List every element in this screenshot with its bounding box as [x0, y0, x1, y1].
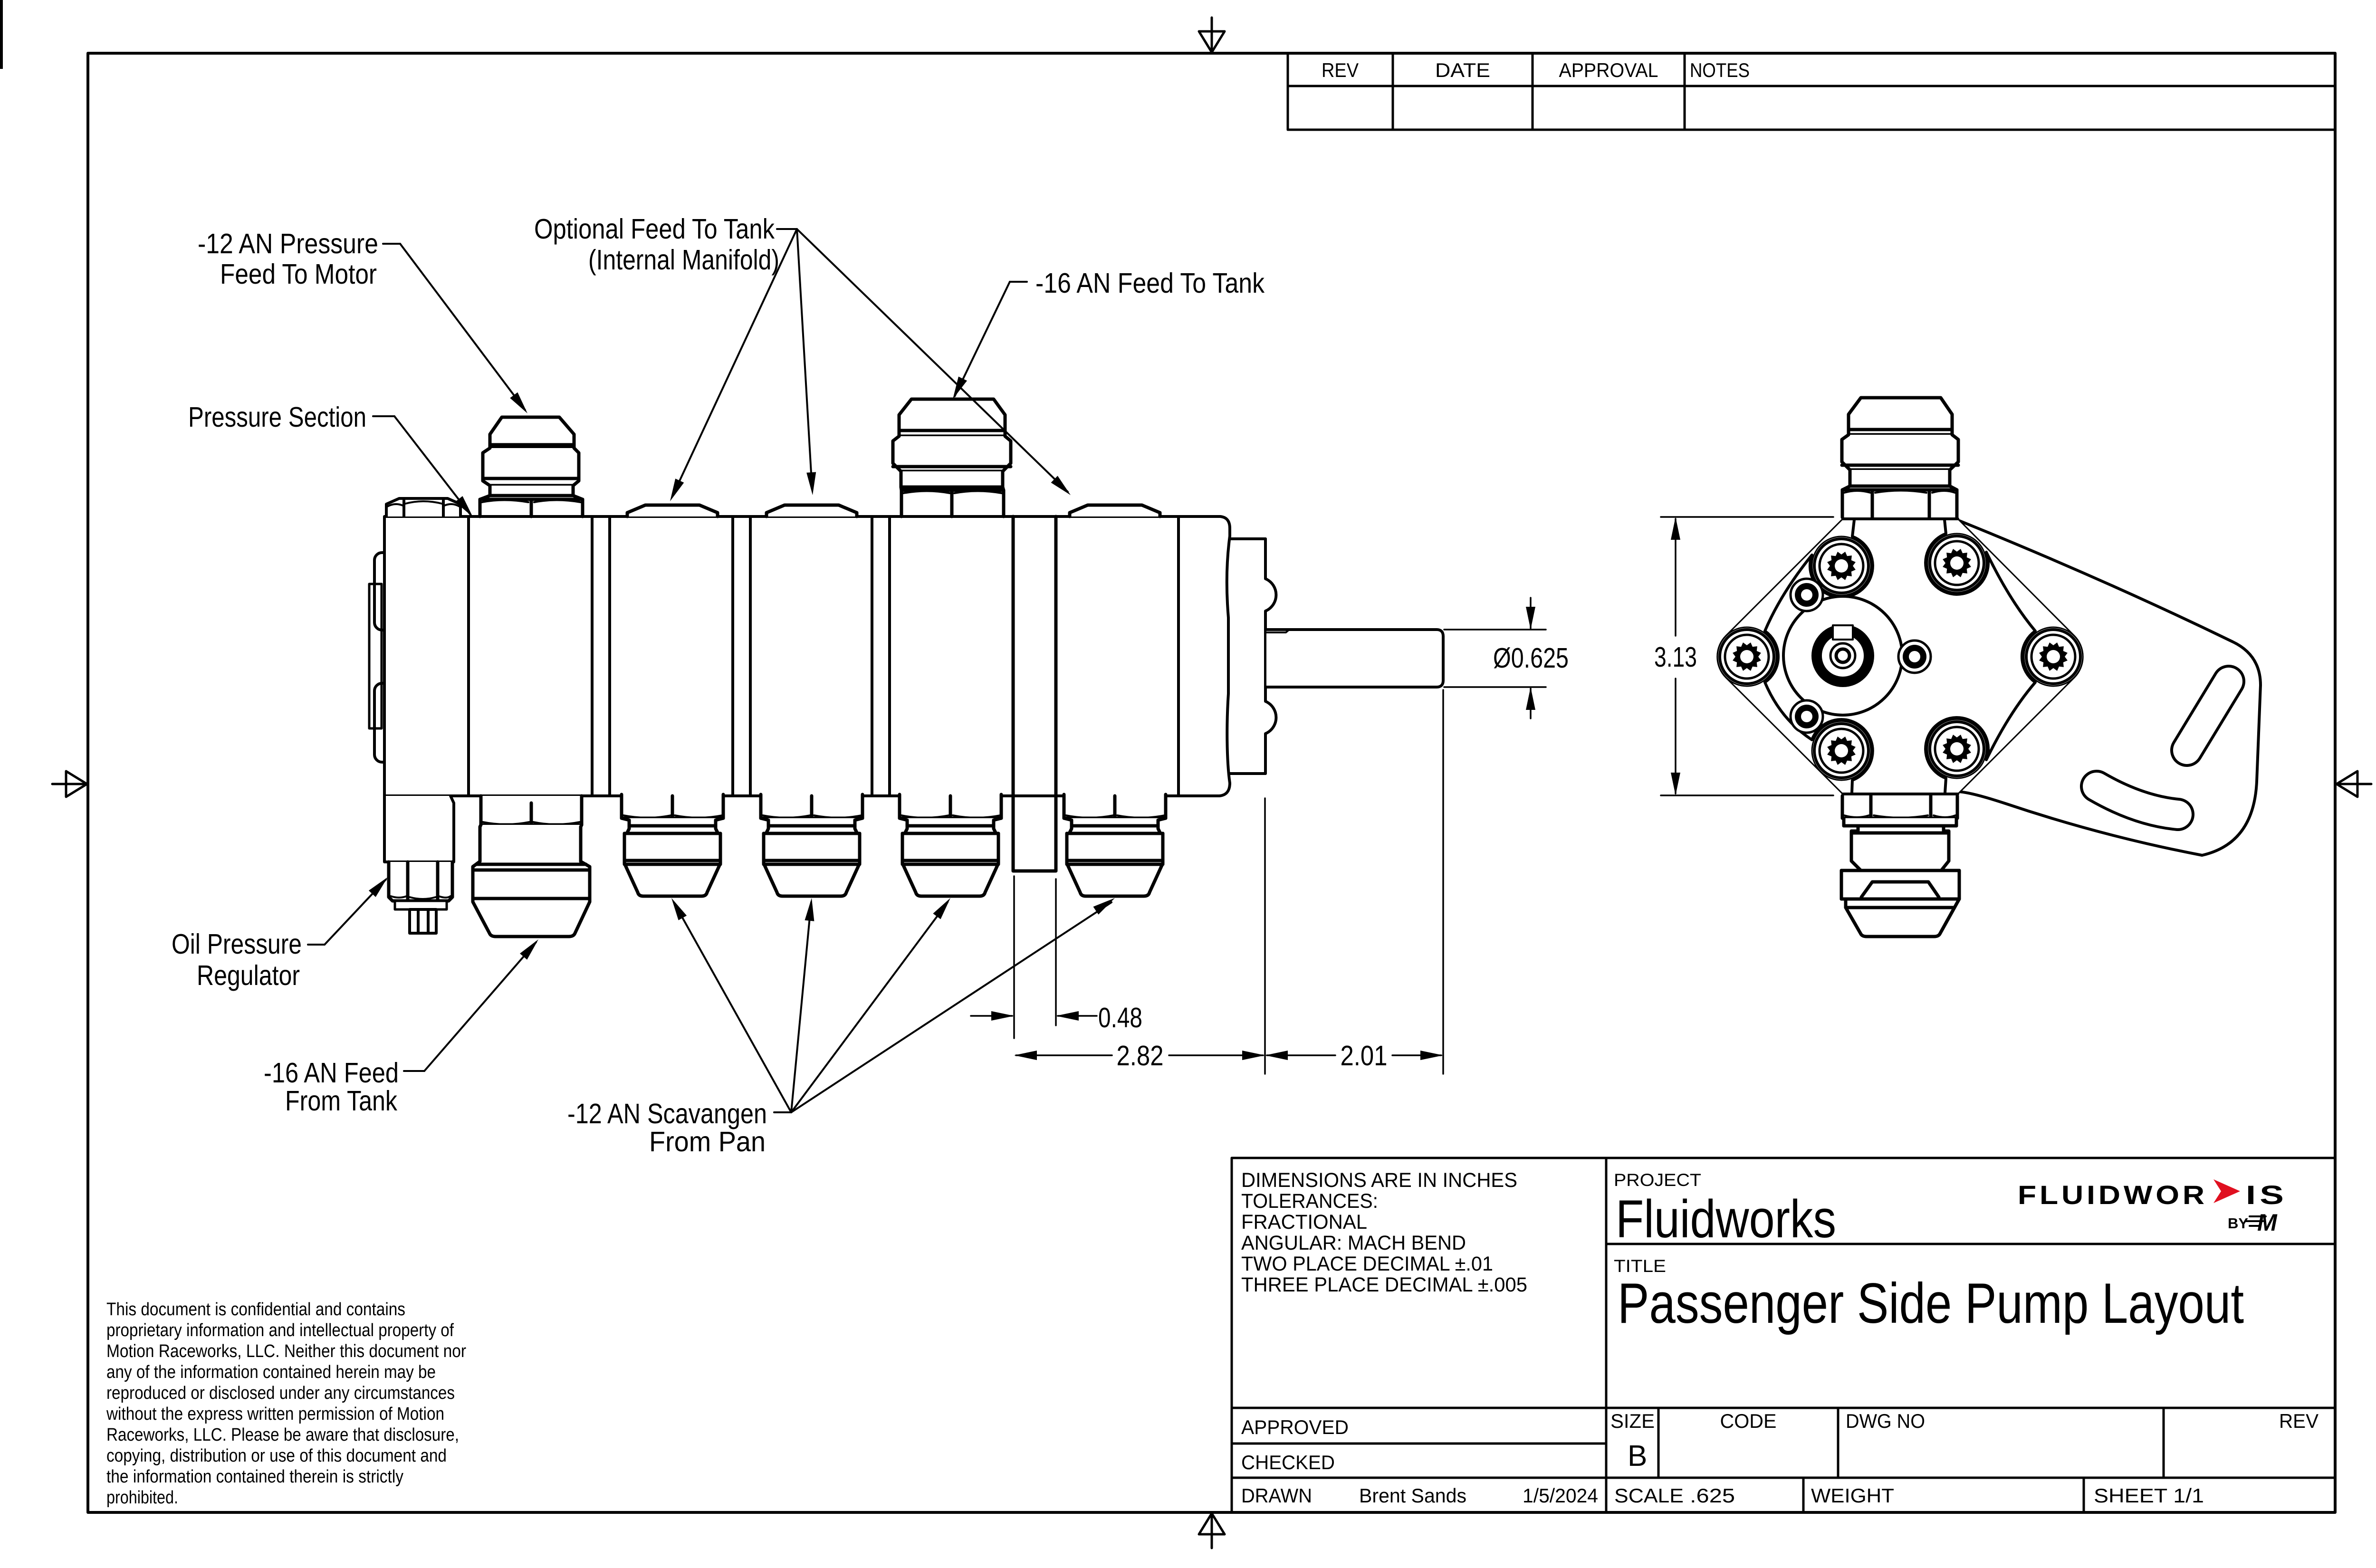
- svg-text:SCALE: SCALE: [1614, 1484, 1684, 1507]
- svg-text:Ø0.625: Ø0.625: [1493, 642, 1569, 674]
- svg-text:Raceworks, LLC. Please be awar: Raceworks, LLC. Please be aware that dis…: [106, 1425, 459, 1445]
- svg-text:-16 AN Feed: -16 AN Feed: [264, 1057, 399, 1089]
- svg-text:From Pan: From Pan: [649, 1126, 766, 1157]
- svg-text:Pressure Section: Pressure Section: [188, 402, 366, 433]
- svg-text:SHEET 1/1: SHEET 1/1: [2094, 1484, 2204, 1507]
- svg-text:Feed To Motor: Feed To Motor: [220, 258, 377, 290]
- svg-text:CHECKED: CHECKED: [1241, 1451, 1335, 1473]
- svg-text:DIMENSIONS ARE IN INCHES: DIMENSIONS ARE IN INCHES: [1241, 1169, 1517, 1192]
- svg-text:2.01: 2.01: [1341, 1040, 1388, 1071]
- svg-text:REV: REV: [2279, 1410, 2319, 1432]
- svg-text:SIZE: SIZE: [1610, 1410, 1655, 1432]
- svg-text:This document is confidential: This document is confidential and contai…: [106, 1300, 405, 1319]
- svg-text:1/5/2024: 1/5/2024: [1523, 1484, 1598, 1507]
- svg-text:Brent Sands: Brent Sands: [1359, 1484, 1466, 1507]
- svg-text:copying, distribution or use o: copying, distribution or use of this doc…: [106, 1446, 447, 1466]
- svg-text:Passenger Side Pump Layout: Passenger Side Pump Layout: [1618, 1272, 2244, 1335]
- svg-text:From Tank: From Tank: [285, 1085, 397, 1117]
- svg-text:proprietary information and in: proprietary information and intellectual…: [106, 1320, 454, 1340]
- svg-text:NOTES: NOTES: [1690, 59, 1750, 81]
- svg-text:.625: .625: [1690, 1484, 1735, 1507]
- svg-text:without the express written pe: without the express written permission o…: [106, 1404, 444, 1424]
- svg-text:APPROVED: APPROVED: [1241, 1416, 1349, 1438]
- svg-text:any of the information contain: any of the information contained herein …: [106, 1362, 436, 1382]
- svg-text:ANGULAR: MACH BEND: ANGULAR: MACH BEND: [1241, 1232, 1466, 1254]
- svg-text:IS: IS: [2246, 1180, 2288, 1210]
- svg-text:DATE: DATE: [1435, 59, 1490, 81]
- svg-text:Optional Feed To Tank: Optional Feed To Tank: [534, 213, 775, 245]
- svg-text:-12 AN Pressure: -12 AN Pressure: [198, 228, 378, 259]
- svg-text:BY: BY: [2228, 1215, 2248, 1232]
- svg-text:M: M: [2257, 1209, 2278, 1236]
- svg-text:Oil Pressure: Oil Pressure: [172, 928, 302, 960]
- svg-text:CODE: CODE: [1720, 1410, 1777, 1432]
- svg-text:PROJECT: PROJECT: [1614, 1170, 1701, 1190]
- svg-text:FRACTIONAL: FRACTIONAL: [1241, 1211, 1367, 1233]
- svg-text:DWG NO: DWG NO: [1846, 1410, 1925, 1432]
- svg-text:3.13: 3.13: [1654, 641, 1697, 673]
- svg-text:FLUIDWOR: FLUIDWOR: [2018, 1180, 2208, 1210]
- svg-text:reproduced or disclosed under: reproduced or disclosed under any circum…: [106, 1383, 455, 1403]
- svg-text:(Internal Manifold): (Internal Manifold): [588, 244, 779, 276]
- svg-text:B: B: [1628, 1440, 1647, 1472]
- svg-text:-12 AN Scavangen: -12 AN Scavangen: [567, 1098, 767, 1129]
- svg-text:DRAWN: DRAWN: [1241, 1484, 1312, 1507]
- svg-text:-16 AN Feed To Tank: -16 AN Feed To Tank: [1035, 268, 1265, 299]
- svg-text:WEIGHT: WEIGHT: [1811, 1484, 1894, 1507]
- svg-text:TWO PLACE DECIMAL ±.01: TWO PLACE DECIMAL ±.01: [1241, 1252, 1493, 1275]
- svg-text:Fluidworks: Fluidworks: [1616, 1189, 1836, 1249]
- svg-text:THREE PLACE DECIMAL ±.005: THREE PLACE DECIMAL ±.005: [1241, 1273, 1527, 1296]
- svg-text:APPROVAL: APPROVAL: [1559, 59, 1658, 81]
- svg-text:0.48: 0.48: [1098, 1002, 1142, 1033]
- svg-text:Regulator: Regulator: [197, 960, 300, 991]
- svg-text:REV: REV: [1322, 59, 1359, 81]
- svg-text:Motion Raceworks, LLC. Neither: Motion Raceworks, LLC. Neither this docu…: [106, 1341, 466, 1361]
- svg-text:the information contained ther: the information contained therein is str…: [106, 1467, 403, 1487]
- svg-text:TOLERANCES:: TOLERANCES:: [1241, 1190, 1378, 1213]
- svg-text:2.82: 2.82: [1117, 1040, 1164, 1071]
- svg-text:prohibited.: prohibited.: [106, 1488, 178, 1508]
